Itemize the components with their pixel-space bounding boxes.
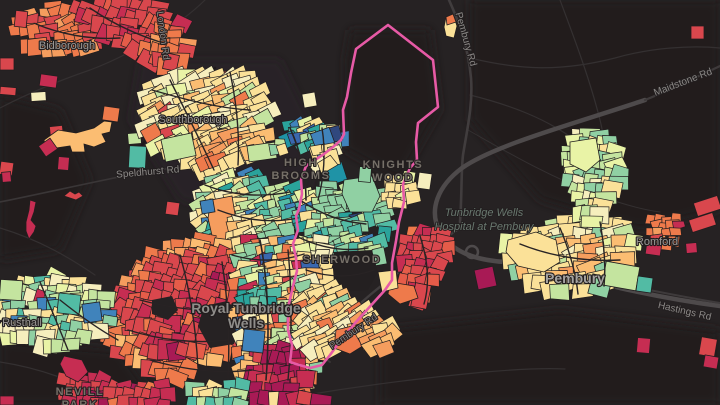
svg-text:Tunbridge Wells: Tunbridge Wells [445, 207, 524, 219]
svg-text:Hospital at Pembury: Hospital at Pembury [434, 221, 535, 233]
svg-text:SHERWOOD: SHERWOOD [303, 254, 382, 266]
svg-text:NEVILL: NEVILL [56, 386, 105, 398]
svg-text:Rusthall: Rusthall [2, 317, 42, 329]
svg-text:WOOD: WOOD [372, 172, 414, 184]
svg-text:BROOMS: BROOMS [271, 170, 330, 182]
svg-text:PARK: PARK [62, 399, 99, 405]
svg-text:HIGH: HIGH [284, 157, 318, 169]
svg-text:Southborough: Southborough [158, 114, 227, 126]
svg-text:Bidborough: Bidborough [39, 40, 95, 52]
svg-text:Pembury: Pembury [545, 270, 605, 286]
svg-text:KNIGHTS: KNIGHTS [363, 159, 424, 171]
svg-text:Wells: Wells [228, 315, 265, 331]
svg-text:Romford: Romford [636, 236, 678, 248]
svg-text:Royal Tunbridge: Royal Tunbridge [191, 300, 301, 316]
